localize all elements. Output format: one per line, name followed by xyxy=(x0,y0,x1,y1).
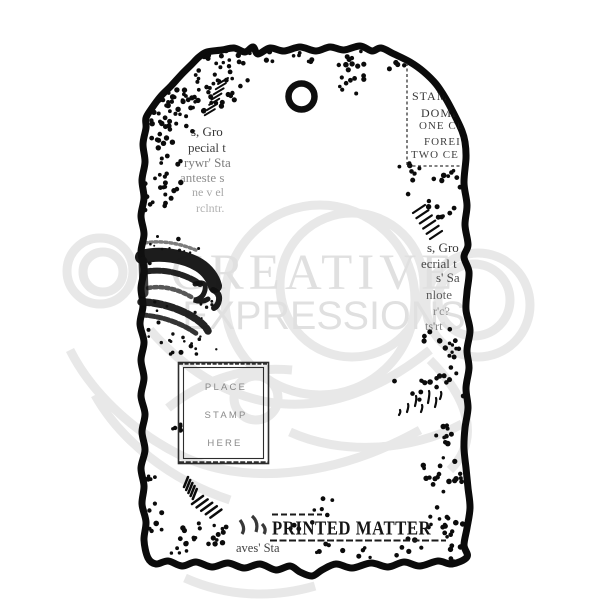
svg-text:TWO CE: TWO CE xyxy=(411,149,459,161)
svg-text:aves' Sta: aves' Sta xyxy=(236,541,280,555)
svg-text:nlote: nlote xyxy=(426,287,452,302)
svg-text:ecrial t: ecrial t xyxy=(421,256,457,271)
svg-text:s' Sa: s' Sa xyxy=(436,270,460,285)
svg-text:r'c?: r'c? xyxy=(433,304,450,318)
svg-text:PRINTED MATTER: PRINTED MATTER xyxy=(272,517,431,540)
svg-text:HERE: HERE xyxy=(207,438,242,449)
svg-text:STAMP: STAMP xyxy=(204,410,247,421)
svg-text:anteste s: anteste s xyxy=(180,170,224,185)
svg-text:s, Gro: s, Gro xyxy=(191,124,223,139)
svg-text:pecial t: pecial t xyxy=(188,140,226,155)
svg-text:FOREI: FOREI xyxy=(424,136,461,148)
svg-text:PLACE: PLACE xyxy=(205,382,247,393)
svg-text:ts'rt: ts'rt xyxy=(425,319,443,333)
svg-text:s, Gro: s, Gro xyxy=(427,240,459,255)
svg-text:EXPRESSIONS: EXPRESSIONS xyxy=(182,294,465,338)
svg-text:ONE CE: ONE CE xyxy=(419,120,464,132)
svg-text:rywr' Sta: rywr' Sta xyxy=(184,155,231,170)
svg-text:rclntr.: rclntr. xyxy=(196,201,224,215)
svg-text:ne v el: ne v el xyxy=(192,185,225,199)
